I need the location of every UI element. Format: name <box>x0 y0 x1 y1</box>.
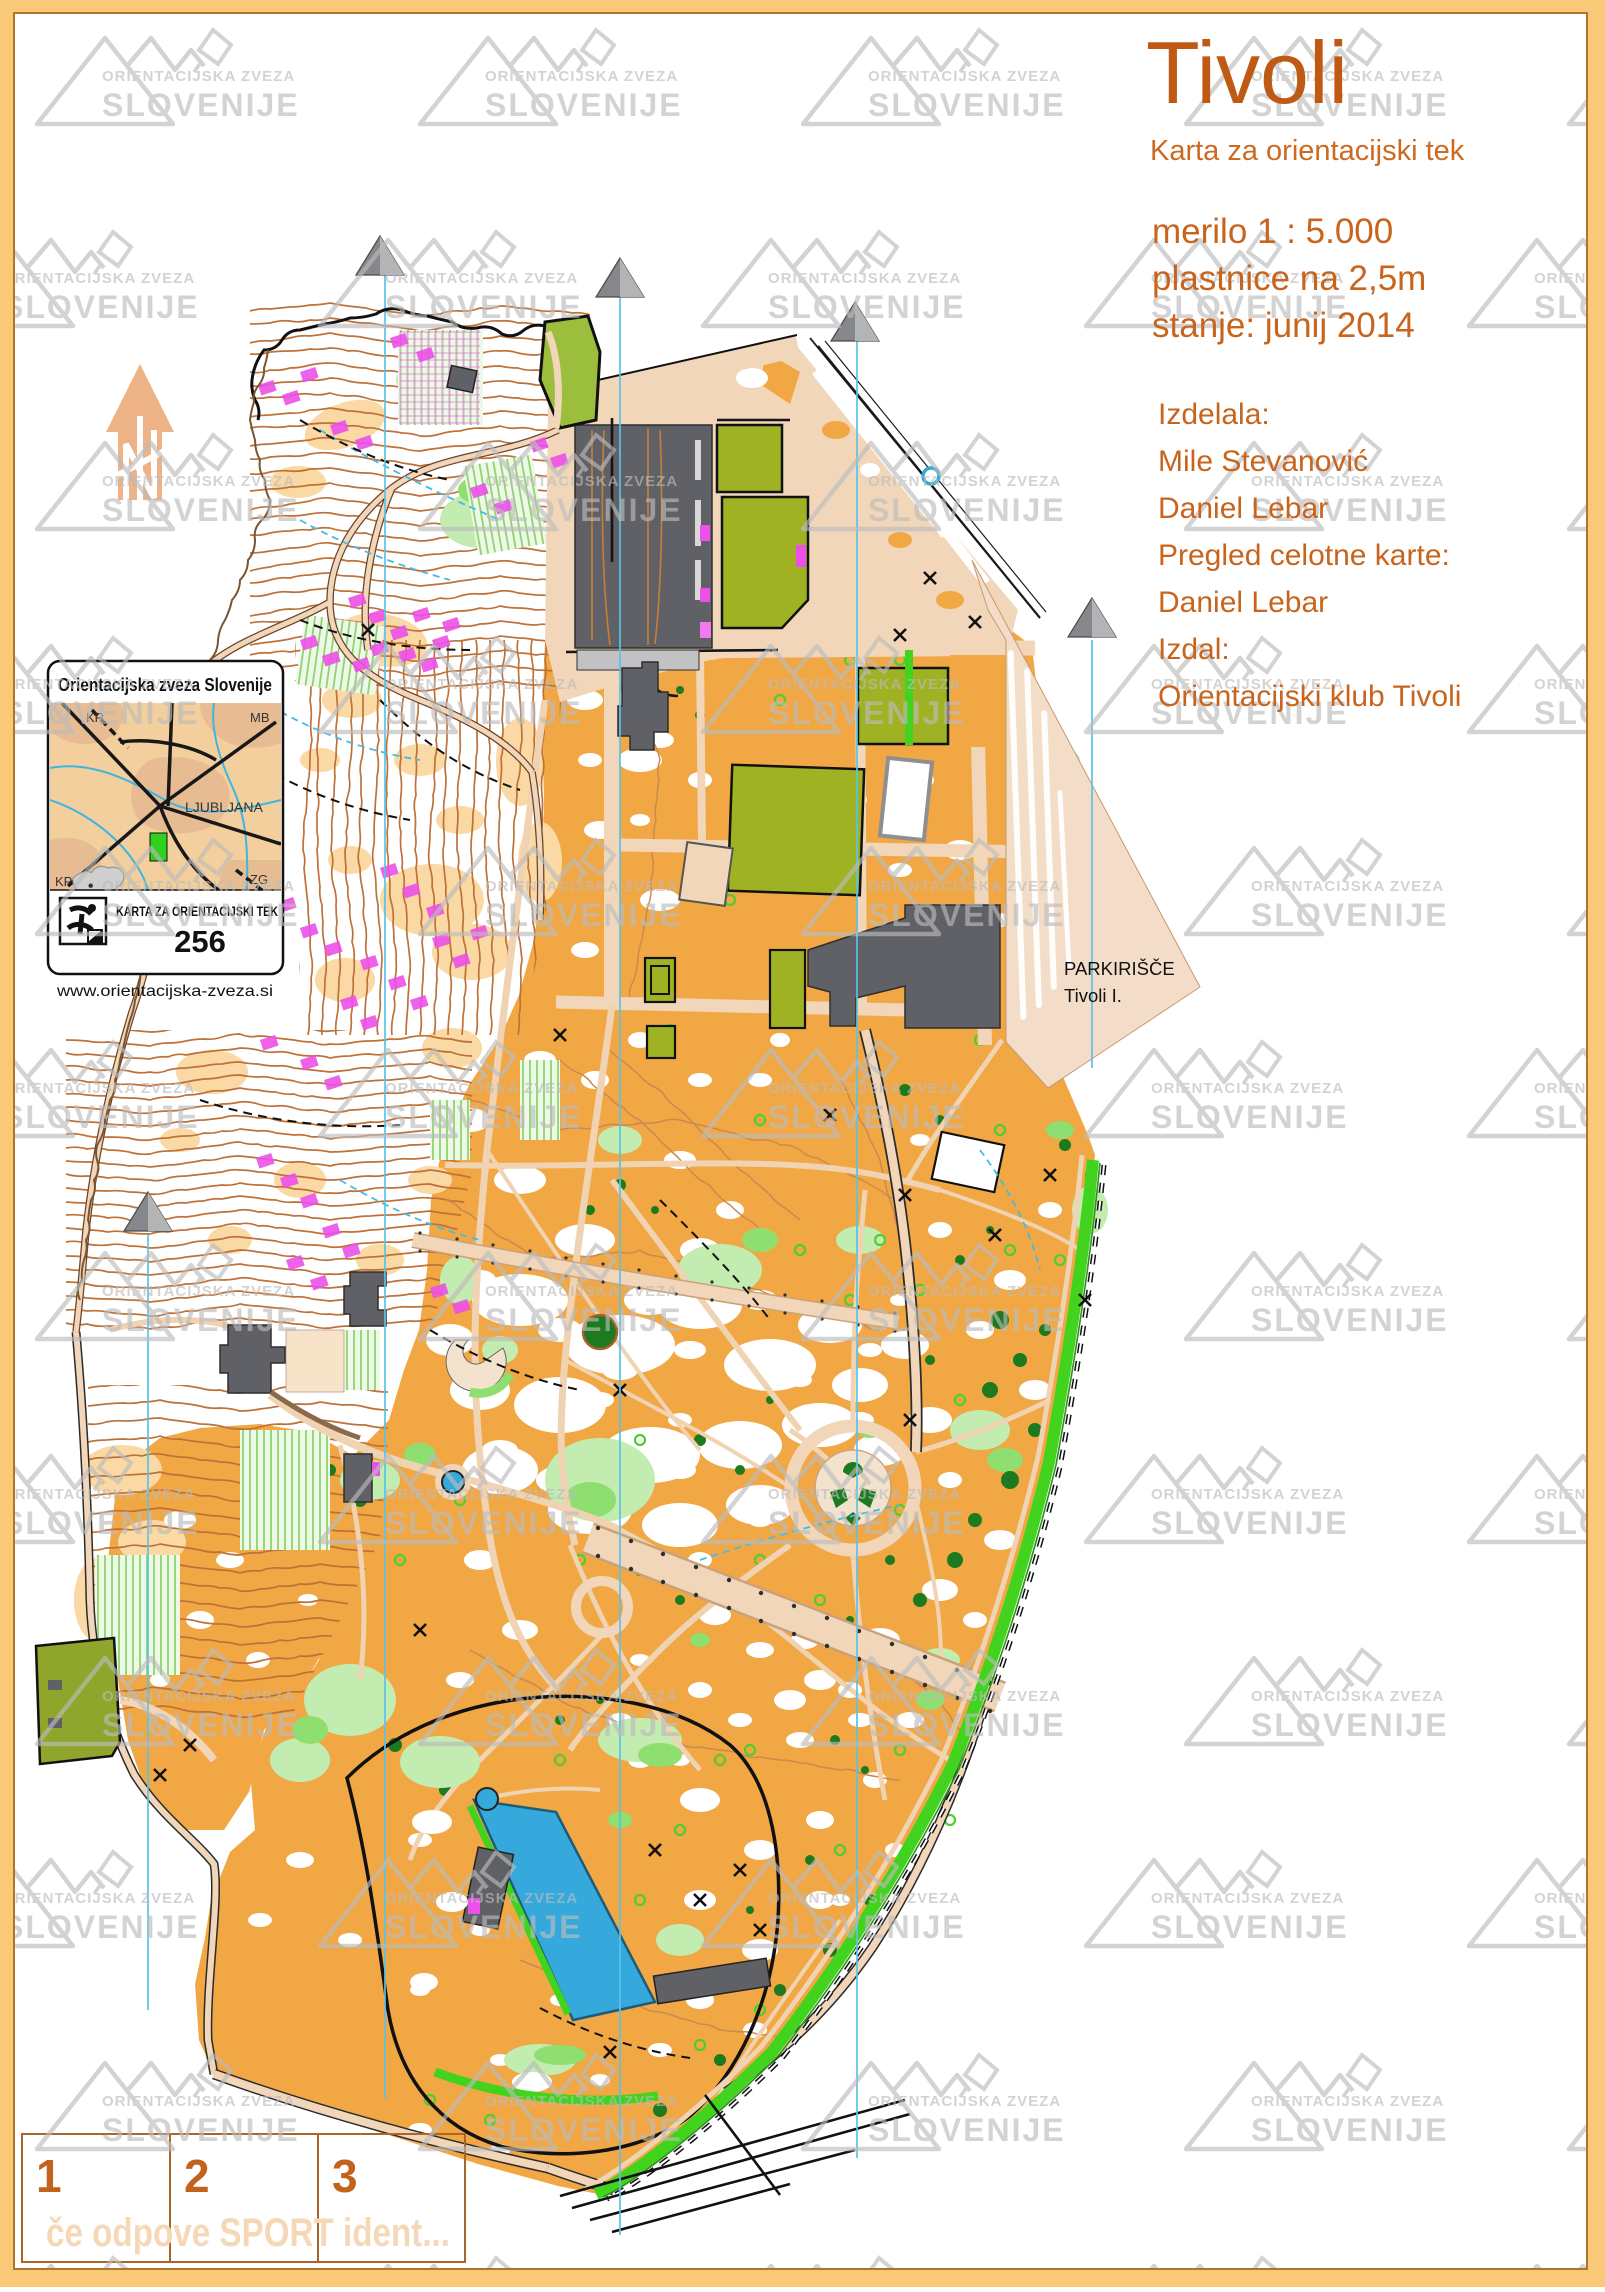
svg-text:če odpove SPORT ident...: če odpove SPORT ident... <box>46 2211 450 2255</box>
svg-text:Orientacijski klub Tivoli: Orientacijski klub Tivoli <box>1158 680 1461 713</box>
svg-text:2: 2 <box>184 2150 210 2202</box>
svg-text:plastnice na 2,5m: plastnice na 2,5m <box>1152 259 1426 298</box>
svg-text:Mile Stevanović: Mile Stevanović <box>1158 445 1368 478</box>
svg-text:Karta za orientacijski tek: Karta za orientacijski tek <box>1150 135 1465 167</box>
svg-text:Pregled celotne karte:: Pregled celotne karte: <box>1158 539 1450 572</box>
svg-text:Daniel Lebar: Daniel Lebar <box>1158 492 1328 525</box>
svg-text:1: 1 <box>36 2150 62 2202</box>
svg-text:Tivoli I.: Tivoli I. <box>1064 985 1122 1006</box>
svg-text:Izdal:: Izdal: <box>1158 633 1230 666</box>
svg-text:Daniel Lebar: Daniel Lebar <box>1158 586 1328 619</box>
svg-text:KP: KP <box>55 874 72 889</box>
svg-text:PARKIRIŠČE: PARKIRIŠČE <box>1064 958 1175 979</box>
svg-text:Izdelala:: Izdelala: <box>1158 398 1270 431</box>
svg-text:www.orientacijska-zveza.si: www.orientacijska-zveza.si <box>56 983 273 1000</box>
svg-text:Tivoli: Tivoli <box>1146 23 1348 122</box>
svg-text:3: 3 <box>332 2150 358 2202</box>
svg-text:stanje: junij 2014: stanje: junij 2014 <box>1152 306 1415 345</box>
svg-text:MB: MB <box>250 710 270 725</box>
svg-text:merilo 1 : 5.000: merilo 1 : 5.000 <box>1152 212 1393 251</box>
svg-text:LJUBLJANA: LJUBLJANA <box>185 799 263 815</box>
